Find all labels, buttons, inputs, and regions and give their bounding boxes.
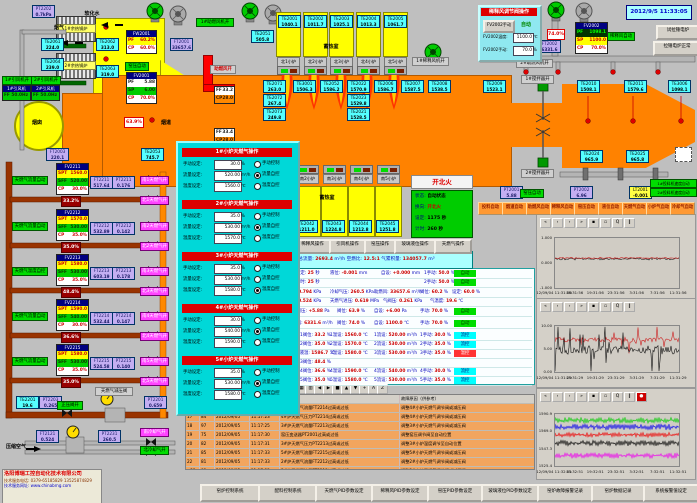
burner-indicator bbox=[357, 66, 380, 75]
sensor-PT2213: PT22130.178 bbox=[112, 267, 135, 280]
chart-toolbar-icon[interactable]: » bbox=[576, 302, 587, 312]
grid-mode-badge: 流控 bbox=[454, 377, 476, 384]
burner-indicator bbox=[350, 165, 373, 174]
grid-mode-badge: 自动 bbox=[454, 320, 476, 327]
edge-machine-button-试拉锤电炉[interactable]: 试拉锤电炉 bbox=[656, 25, 697, 40]
ops-button-窑压操作[interactable]: 窑压操作 bbox=[364, 239, 396, 254]
chart-y-tick: 5.00 bbox=[537, 346, 552, 351]
grid-cell: 4手动: 30.0 % bbox=[420, 368, 451, 374]
auto-button-稀释风自动[interactable]: 稀释风自动 bbox=[550, 202, 575, 215]
mode-radio-label: 手动控制 bbox=[262, 264, 280, 270]
burner-off-icon bbox=[290, 69, 297, 73]
sensor-TE2023: TE20231529.8 bbox=[347, 94, 370, 107]
chart-toolbar-icon[interactable]: Q bbox=[612, 218, 623, 228]
chart-plot bbox=[554, 413, 680, 467]
label-南1天燃气开: 南1天燃气开 bbox=[140, 176, 169, 185]
trend-chart-panel: «‹›»▪▫Q‖1.0000.000-1.00012/09/04 11:31:5… bbox=[536, 214, 696, 300]
ctrl-FV2002: FV2002PF1098.1SP1100.0CP70.0% bbox=[575, 22, 608, 54]
nav-button-玻璃液位PID参数设定[interactable]: 玻璃液位PID参数设定 bbox=[481, 484, 539, 502]
field-label: 流量设定: bbox=[183, 328, 202, 334]
auto-button-天燃气自动[interactable]: 天燃气自动 bbox=[622, 202, 647, 215]
mode-radio-label: 温度自控 bbox=[262, 286, 280, 292]
label-烟气: 烟气 bbox=[50, 24, 68, 32]
chart-toolbar-icon[interactable]: « bbox=[540, 302, 551, 312]
mode-radio-temp[interactable] bbox=[254, 391, 261, 398]
popup-section-title: 4#小炉天燃气操作 bbox=[182, 304, 292, 313]
ops-button-天燃气操作[interactable]: 天燃气操作 bbox=[434, 239, 472, 254]
trend-chart-panel: «‹›»▪▫Q‖●1590.91569.01547.31525.412/09/0… bbox=[536, 388, 696, 480]
label-2#投料机速度自动: 2#投料机速度自动 bbox=[650, 188, 697, 197]
port-label-south: 南3小炉 bbox=[323, 174, 346, 184]
chart-toolbar-icon[interactable]: ▫ bbox=[600, 302, 611, 312]
field-input-manual[interactable]: 30.0 bbox=[214, 316, 242, 326]
field-unit: % bbox=[241, 369, 245, 374]
chart-toolbar-icon[interactable]: ‖ bbox=[624, 218, 635, 228]
chart-toolbar-icon[interactable]: › bbox=[564, 218, 575, 228]
field-label: FV2002手动: bbox=[483, 47, 508, 53]
grid-cell: 5流设: 530.00 m³/h bbox=[374, 377, 417, 383]
field-input-temp[interactable]: 1560.0 bbox=[214, 182, 242, 192]
chart-toolbar-icon[interactable]: ‖ bbox=[624, 302, 635, 312]
sensor-PT2215: PT22150.140 bbox=[112, 357, 135, 370]
chart-toolbar-icon[interactable]: « bbox=[540, 392, 551, 402]
chart-x-tick: 3:31:56 bbox=[629, 290, 644, 295]
grid-cell: 1手动: 30.0 % bbox=[420, 332, 451, 338]
field-input-temp[interactable]: 1570.0 bbox=[214, 234, 242, 244]
grid-cell: 手动: 70.0 % bbox=[420, 308, 448, 314]
field-unit: ℃ bbox=[241, 235, 246, 240]
grid-cell: 2阀位: 35.0 % bbox=[300, 341, 331, 347]
sensor-TE2064: TE2064239.0 bbox=[41, 58, 64, 71]
grid-cell: 2手动: 50.0 % bbox=[424, 279, 455, 285]
sensor-TE2025: TE2025965.8 bbox=[626, 150, 649, 163]
grid-cell: 自设: 1100.0 ℃ bbox=[374, 320, 409, 326]
valve-position-box: 33.2% bbox=[61, 196, 81, 207]
mode-radio-label: 手动控制 bbox=[262, 160, 280, 166]
mode-radio-manual[interactable] bbox=[254, 161, 261, 168]
valve-position-box: 48.4% bbox=[61, 287, 81, 298]
mode-radio-manual[interactable] bbox=[254, 213, 261, 220]
chart-x-tick: 23:31:29 bbox=[607, 375, 624, 380]
sensor-LT2001: LT2001-0.001 bbox=[629, 186, 652, 199]
chart-x-tick: 23:32:51 bbox=[607, 469, 624, 474]
dynamic-layer: 北1小炉北2小炉北3小炉北4小炉北5小炉南2小炉南3小炉南4小炉南5小炉TE20… bbox=[0, 0, 697, 503]
chart-toolbar-icon[interactable]: › bbox=[564, 302, 575, 312]
status-row: 设定: 1175 秒 bbox=[412, 213, 472, 224]
nav-button-配料控制系统[interactable]: 配料控制系统 bbox=[258, 484, 318, 502]
chart-toolbar-icon[interactable]: ‖ bbox=[624, 392, 635, 402]
auto-button-投料自动[interactable]: 投料自动 bbox=[478, 202, 503, 215]
sensor-TE2201: TE220119.6 bbox=[16, 396, 39, 409]
grid-cell: 5阀位: 35.0 % bbox=[300, 377, 331, 383]
chart-toolbar-icon[interactable]: ▪ bbox=[588, 302, 599, 312]
burner-on-icon bbox=[361, 69, 368, 73]
label-天燃气流量自动: 天燃气流量自动 bbox=[12, 222, 48, 231]
field-label: 手动设定: bbox=[183, 317, 202, 323]
chart-toolbar-icon[interactable]: ▪ bbox=[588, 392, 599, 402]
ctrl-FV2214: FV2214SPT1590.0SFF540.00CP30.0% bbox=[56, 299, 89, 331]
sensor-TE2005: TE20051061.7 bbox=[384, 15, 407, 28]
chart-x-tick: 19:31:56 bbox=[587, 290, 604, 295]
label-烟道: 烟道 bbox=[157, 119, 175, 127]
sensor-PT2202: PT22020.7kPa bbox=[32, 5, 55, 18]
chart-plot bbox=[554, 237, 680, 289]
chart-toolbar-icon[interactable]: Q bbox=[612, 302, 623, 312]
burner-gas-control-popup: 1#小炉天燃气操作手动设定:30.0%手动控制流量设定:520.00m³/h流量… bbox=[176, 141, 300, 416]
port-label-south: 南5小炉 bbox=[377, 174, 400, 184]
chart-toolbar-icon[interactable]: » bbox=[576, 218, 587, 228]
status-row: 状态: 自动状态 bbox=[412, 191, 472, 202]
field-label: 流量设定: bbox=[183, 224, 202, 230]
status-row: 计时: 260 秒 bbox=[412, 224, 472, 235]
valve-position-box: 63.9% bbox=[124, 117, 144, 128]
auto-button-窑压自动[interactable]: 窑压自动 bbox=[574, 202, 599, 215]
chart-toolbar-icon[interactable]: ▫ bbox=[600, 392, 611, 402]
label-北冷却气开: 北冷却气开 bbox=[140, 446, 169, 455]
burner-off-icon bbox=[309, 168, 316, 172]
nav-button-天燃气PID参数设定[interactable]: 天燃气PID参数设定 bbox=[315, 484, 373, 502]
field-input-flow[interactable]: 530.00 bbox=[214, 223, 242, 233]
scada-hmi-screen: 1#余热锅炉 2#余热锅炉 北1小炉北2小炉北3小炉北4小炉北5小炉南2小炉南3… bbox=[0, 0, 697, 503]
nav-button-窑炉故障报警记录[interactable]: 窑炉故障报警记录 bbox=[537, 484, 593, 502]
sensor-TE2024: TE2024965.9 bbox=[580, 150, 603, 163]
sensor-FT2212: FT2212532.89 bbox=[90, 222, 113, 235]
sensor-TE2007: TE20071587.5 bbox=[401, 80, 424, 93]
field-label: 手动设定: bbox=[183, 213, 202, 219]
mode-radio-label: 温度自控 bbox=[262, 234, 280, 240]
chart-y-tick: 1547.3 bbox=[537, 446, 552, 451]
chart-plot bbox=[554, 325, 680, 373]
field-input-temp[interactable]: 1590.0 bbox=[214, 338, 242, 348]
field-unit: ℃ bbox=[533, 34, 538, 39]
sensor-TE2006: TE20061586.7 bbox=[374, 80, 397, 93]
burner-on-icon bbox=[334, 69, 341, 73]
field-input-manual[interactable]: 30.0 bbox=[214, 160, 242, 170]
popup-section-title: 1#小炉天燃气操作 bbox=[182, 148, 292, 157]
field-label: 手动设定: bbox=[183, 161, 202, 167]
field-label: 流量设定: bbox=[183, 276, 202, 282]
field-input-flow[interactable]: 540.00 bbox=[214, 327, 242, 337]
sensor-TE3006: TE30061098.1 bbox=[668, 80, 691, 93]
burner-on-icon bbox=[327, 168, 334, 172]
chart-x-tick: 23:31:56 bbox=[607, 290, 624, 295]
mode-radio-manual[interactable] bbox=[254, 317, 261, 324]
burner-indicator bbox=[277, 66, 300, 75]
mode-radio-flow[interactable] bbox=[254, 172, 261, 179]
chart-y-tick: 1590.9 bbox=[537, 411, 552, 416]
grid-mode-badge: 温控 bbox=[454, 350, 476, 357]
field-label: 温度设定: bbox=[183, 391, 202, 397]
chart-toolbar-icon[interactable]: ▫ bbox=[600, 218, 611, 228]
sensor-PT2231: PT2231260.5 bbox=[98, 430, 121, 443]
sensor-PT2214: PT22140.147 bbox=[112, 312, 135, 325]
grid-cell: 1阀位: 33.2 % bbox=[300, 332, 331, 338]
nav-button-窑压PID参数设定[interactable]: 窑压PID参数设定 bbox=[427, 484, 483, 502]
field-input-flow[interactable]: 530.00 bbox=[214, 379, 242, 389]
chart-toolbar-icon[interactable]: « bbox=[540, 218, 551, 228]
sensor-TE3001: TE30011506.3 bbox=[293, 80, 316, 93]
label-稀释风自动: 稀释风自动 bbox=[607, 32, 635, 41]
auto-button-液位自动[interactable]: 液位自动 bbox=[598, 202, 623, 215]
ops-button-玻璃液位操作[interactable]: 玻璃液位操作 bbox=[394, 239, 436, 254]
label-窑压自动: 窑压自动 bbox=[520, 189, 544, 198]
grid-cell: 3流设: 530.00 m³/h bbox=[374, 350, 417, 356]
valve-position-box: 36.6% bbox=[61, 332, 81, 343]
chart-x-tick: 11:31:56 bbox=[669, 290, 686, 295]
sensor-TE2061: TE2061224.0 bbox=[41, 38, 64, 51]
grid-mode-badge: 流控 bbox=[454, 368, 476, 375]
trend-chart-panel: «‹›»▪▫Q‖10.005.000.0012/09/04 11:31:2915… bbox=[536, 298, 696, 388]
field-input-manual[interactable]: 35.0 bbox=[214, 368, 242, 378]
sensor-TE2021: TE20211528.5 bbox=[347, 108, 370, 121]
mode-radio-label: 流量自控 bbox=[262, 171, 280, 177]
grid-cell: 1手动: 50.0 % bbox=[424, 270, 455, 276]
burner-indicator bbox=[304, 66, 327, 75]
field-input-temp[interactable]: 1580.0 bbox=[214, 286, 242, 296]
sensor-TE2010: TE20101508.1 bbox=[577, 80, 600, 93]
ctrl-FW2001: FW2001PF60.2%CP60.0% bbox=[126, 30, 157, 54]
grid-cell: 助燃风: 33657.6 m³/h bbox=[374, 289, 422, 295]
mode-radio-temp[interactable] bbox=[254, 235, 261, 242]
chart-y-tick: 0.00 bbox=[537, 369, 552, 374]
burner-on-icon bbox=[281, 69, 288, 73]
popup-title: 稀释风调节阀操作 bbox=[481, 8, 537, 16]
field-unit: % bbox=[241, 317, 245, 322]
mode-radio-flow[interactable] bbox=[254, 328, 261, 335]
chart-x-tick: 19:31:29 bbox=[587, 375, 604, 380]
nav-button-系统报警值设定[interactable]: 系统报警值设定 bbox=[643, 484, 697, 502]
chart-toolbar-icon[interactable]: ‹ bbox=[552, 392, 563, 402]
field-input-flow[interactable]: 530.00 bbox=[214, 275, 242, 285]
nav-button-稀释风PID参数设定[interactable]: 稀释风PID参数设定 bbox=[371, 484, 429, 502]
field-unit: % bbox=[241, 161, 245, 166]
ctrl-FV2211: FV2211SPT1560.0SFF520.00CP30.0% bbox=[56, 163, 89, 195]
field-label: 手动设定: bbox=[183, 265, 202, 271]
grid-cell: 气温度: 19.6 ℃ bbox=[430, 298, 463, 304]
popup-section-title: 2#小炉天燃气操作 bbox=[182, 200, 292, 209]
label-天燃气流量自动: 天燃气流量自动 bbox=[12, 312, 48, 321]
ctrl-FV2215: FV2215SPT1580.0SFF530.00CP35.0% bbox=[56, 344, 89, 376]
record-icon[interactable]: ● bbox=[636, 392, 647, 402]
mode-radio-label: 温度自控 bbox=[262, 338, 280, 344]
edge-machine-button-拉锤电炉正常[interactable]: 拉锤电炉正常 bbox=[653, 41, 697, 56]
nav-button-窑炉数据记录[interactable]: 窑炉数据记录 bbox=[591, 484, 645, 502]
field-unit: m³/h bbox=[241, 224, 250, 229]
sensor-TE2043: TE20431224.8 bbox=[322, 220, 345, 233]
mode-radio-manual[interactable] bbox=[254, 265, 261, 272]
label-南2天燃气开: 南2天燃气开 bbox=[140, 222, 169, 231]
grid-cell: 4温设: 1590.0 ℃ bbox=[330, 368, 368, 374]
ctrl-FV2213: FV2213SPT1580.0SFF530.00CP35.0% bbox=[56, 254, 89, 286]
grid-cell: 3温设: 1580.0 ℃ bbox=[330, 350, 368, 356]
sensor-FT2211: FT2211517.64 bbox=[90, 176, 113, 189]
auto-button-助燃风自动[interactable]: 助燃风自动 bbox=[526, 202, 551, 215]
sensor-TE2003: TE20031025.1 bbox=[330, 15, 353, 28]
burner-off-icon bbox=[370, 69, 377, 73]
auto-button-小炉气自动[interactable]: 小炉气自动 bbox=[646, 202, 671, 215]
field-unit: m³/h bbox=[241, 276, 250, 281]
field-unit: ℃ bbox=[241, 391, 246, 396]
grid-cell: 设定: 60.0 % bbox=[452, 289, 480, 295]
sensor-FT2215: FT2215524.58 bbox=[90, 357, 113, 370]
sensor-TE2063: TE2063319.0 bbox=[96, 65, 119, 78]
sensor-TE2004: TE20041013.3 bbox=[357, 15, 380, 28]
mode-radio-temp[interactable] bbox=[254, 339, 261, 346]
valve-position-box: 35.0% bbox=[61, 242, 81, 253]
valve-position-box: 74.0% bbox=[547, 29, 565, 40]
grid-cell: 2流设: 530.00 m³/h bbox=[374, 341, 417, 347]
sensor-TE2002: TE20021011.7 bbox=[304, 15, 327, 28]
auto-button-冷却气自动[interactable]: 冷却气自动 bbox=[670, 202, 695, 215]
burner-off-icon bbox=[363, 168, 370, 172]
burner-indicator bbox=[384, 66, 407, 75]
burner-on-icon bbox=[354, 168, 361, 172]
sensor-TE2053: TE2053745.7 bbox=[141, 148, 164, 161]
mode-radio-label: 流量自控 bbox=[262, 327, 280, 333]
field-unit: % bbox=[241, 265, 245, 270]
sensor-TE2009: TE20091523.1 bbox=[483, 80, 506, 93]
chart-x-tick: 7:31:56 bbox=[650, 290, 665, 295]
label-南冷却气开: 南冷却气开 bbox=[140, 428, 169, 437]
label-北1天燃气开: 北1天燃气开 bbox=[140, 196, 169, 205]
sensor-TE2022: TE20221570.9 bbox=[347, 80, 370, 93]
label-南5天燃气开: 南5天燃气开 bbox=[140, 357, 169, 366]
mode-radio-label: 手动控制 bbox=[262, 212, 280, 218]
chart-toolbar-icon[interactable]: ▪ bbox=[588, 218, 599, 228]
field-label: 温度设定: bbox=[183, 287, 202, 293]
chart-toolbar: «‹›»▪▫Q‖● bbox=[540, 392, 647, 402]
mode-radio-label: 流量自控 bbox=[262, 379, 280, 385]
burner-indicator bbox=[323, 165, 346, 174]
mode-radio-manual[interactable] bbox=[254, 369, 261, 376]
grid-cell: 2温设: 1570.0 ℃ bbox=[330, 341, 368, 347]
field-unit: % bbox=[241, 213, 245, 218]
field-input[interactable]: 1100.0 bbox=[513, 33, 534, 43]
grid-mode-badge: 流控 bbox=[454, 332, 476, 339]
sensor-TE2071: TE2071263.0 bbox=[263, 80, 286, 93]
label-南4天燃气开: 南4天燃气开 bbox=[140, 312, 169, 321]
grid-cell: 天燃气进压: 0.619 MPa bbox=[330, 298, 379, 304]
label-天燃气减压阀: 天燃气减压阀 bbox=[95, 387, 133, 396]
field-input[interactable]: 70.0 bbox=[513, 46, 534, 56]
sensor-PT2211: PT22110.176 bbox=[112, 176, 135, 189]
sensor-TE2001: TE20011040.1 bbox=[278, 15, 301, 28]
dilution-air-valve-popup: 稀释风调节阀操作FV2002手动自动FV2002温度:1100.0℃FV2002… bbox=[478, 5, 542, 62]
label-正压阀开: 正压阀开 bbox=[57, 401, 83, 410]
sensor-TE2062: TE2062313.0 bbox=[96, 38, 119, 51]
mode-radio-label: 手动控制 bbox=[262, 316, 280, 322]
sensor-TE2051: TE2051505.8 bbox=[251, 30, 274, 43]
burner-on-icon bbox=[308, 69, 315, 73]
chart-x-tick: 7:32:51 bbox=[650, 469, 665, 474]
field-input-flow[interactable]: 520.00 bbox=[214, 171, 242, 181]
label-北2天燃气开: 北2天燃气开 bbox=[140, 242, 169, 251]
status-row: 换向: 开北火 bbox=[412, 202, 472, 213]
mode-radio-label: 流量自控 bbox=[262, 223, 280, 229]
grid-cell: 3手动: 35.0 % bbox=[420, 350, 451, 356]
chart-y-tick: 1525.4 bbox=[537, 463, 552, 468]
chart-x-tick: 3:32:51 bbox=[629, 469, 644, 474]
valve-position-box: 35.0% bbox=[61, 377, 81, 388]
label-1#稀释风机开: 1#稀释风机开 bbox=[412, 57, 449, 66]
field-unit: m³/h bbox=[241, 380, 250, 385]
chart-toolbar-icon[interactable]: ‹ bbox=[552, 218, 563, 228]
auto-button-烟道自动[interactable]: 烟道自动 bbox=[502, 202, 527, 215]
mode-radio-flow[interactable] bbox=[254, 380, 261, 387]
grid-cell: 2手动: 35.0 % bbox=[420, 341, 451, 347]
burner-off-icon bbox=[343, 69, 350, 73]
label-2#引风机开: 2#引风机开 bbox=[31, 76, 61, 85]
mode-radio-label: 流量自控 bbox=[262, 275, 280, 281]
field-input-manual[interactable]: 35.0 bbox=[214, 212, 242, 222]
chart-toolbar-icon[interactable]: ‹ bbox=[552, 302, 563, 312]
field-label: 温度设定: bbox=[183, 235, 202, 241]
sensor-TE2045: TE20451251.8 bbox=[376, 220, 399, 233]
sensor-TE2072: TE2072267.4 bbox=[263, 94, 286, 107]
mode-radio-temp[interactable] bbox=[254, 287, 261, 294]
chart-toolbar-icon[interactable]: Q bbox=[612, 392, 623, 402]
burner-indicator bbox=[377, 165, 400, 174]
nav-button-窑炉控制系统[interactable]: 窑炉控制系统 bbox=[200, 484, 260, 502]
grid-cell: 阀位: 60.2 % bbox=[420, 289, 448, 295]
grid-cell: 1温设: 1560.0 ℃ bbox=[330, 332, 368, 338]
grid-mode-badge: 自动 bbox=[454, 270, 476, 277]
grid-cell: 气阀压: 0.261 KPa bbox=[383, 298, 422, 304]
label-软化水: 软化水 bbox=[80, 10, 104, 18]
field-label: 手动设定: bbox=[183, 369, 202, 375]
field-unit: m³/h bbox=[241, 172, 250, 177]
burner-off-icon bbox=[390, 168, 397, 172]
chart-toolbar-icon[interactable]: › bbox=[564, 392, 575, 402]
mode-radio-flow[interactable] bbox=[254, 276, 261, 283]
auto-text: 自动 bbox=[518, 21, 534, 29]
label-北4天燃气开: 北4天燃气开 bbox=[140, 332, 169, 341]
grid-mode-badge: 流控 bbox=[454, 341, 476, 348]
label-压缩空气: 压缩空气 bbox=[3, 443, 29, 451]
label-天燃气温度自控: 天燃气温度自控 bbox=[12, 267, 48, 276]
grid-mode-badge: 自动 bbox=[454, 279, 476, 286]
sensor-TE2052: TE20521586.2 bbox=[320, 80, 343, 93]
ctrl-FV2001: FV2001PF5.88SP6.00CP70.0% bbox=[126, 72, 157, 104]
chart-toolbar-icon[interactable]: » bbox=[576, 392, 587, 402]
chart-y-tick: 1569.0 bbox=[537, 428, 552, 433]
field-label: 流量设定: bbox=[183, 380, 202, 386]
field-input-temp[interactable]: 1580.0 bbox=[214, 390, 242, 400]
ops-button-引风机操作[interactable]: 引风机操作 bbox=[329, 239, 366, 254]
label-1#搅拌器开: 1#搅拌器开 bbox=[521, 75, 554, 84]
field-input-manual[interactable]: 35.0 bbox=[214, 264, 242, 274]
sensor-FT2214: FT2214532.44 bbox=[90, 312, 113, 325]
sensor-FT2213: FT2213603.19 bbox=[90, 267, 113, 280]
label-1#引风机开: 1#引风机开 bbox=[2, 76, 32, 85]
grid-cell: 手动: 70.0 % bbox=[420, 320, 448, 326]
label-窑压自动: 窑压自动 bbox=[125, 62, 149, 71]
label-1#投料机速度自动: 1#投料机速度自动 bbox=[650, 179, 697, 188]
chart-x-tick: 7:31:29 bbox=[650, 375, 665, 380]
field-unit: ℃ bbox=[241, 183, 246, 188]
chart-x-tick: 19:32:51 bbox=[587, 469, 604, 474]
mode-radio-temp[interactable] bbox=[254, 183, 261, 190]
mode-radio-flow[interactable] bbox=[254, 224, 261, 231]
grid-cell: 液位: -0.001 mm bbox=[330, 270, 367, 276]
sensor-TE2008: TE20081538.5 bbox=[428, 80, 451, 93]
chart-x-tick: 11:31:29 bbox=[669, 375, 686, 380]
sensor-TE2073: TE2073249.8 bbox=[263, 108, 286, 121]
field-label: 温度设定: bbox=[183, 183, 202, 189]
field-label: 温度设定: bbox=[183, 339, 202, 345]
sensor-FT2121: FT21210.524 bbox=[36, 430, 59, 443]
fv2002-manual-button[interactable]: FV2002手动 bbox=[483, 20, 515, 33]
